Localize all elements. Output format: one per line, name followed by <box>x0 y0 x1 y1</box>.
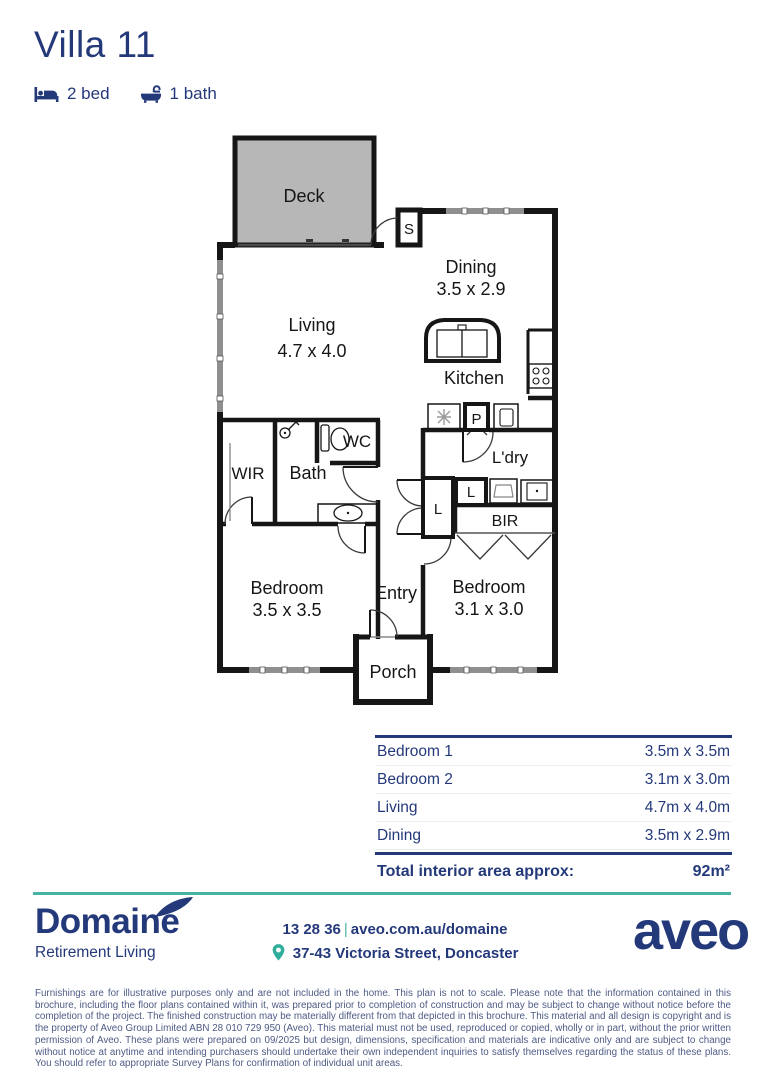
bed-icon <box>34 86 59 103</box>
contact-line-1: 13 28 36|aveo.com.au/domaine <box>250 918 540 942</box>
table-row: Bedroom 1 3.5m x 3.5m <box>375 738 732 766</box>
label-porch: Porch <box>369 662 416 682</box>
aveo-logo: aveo <box>633 900 748 962</box>
row-label: Bedroom 1 <box>377 743 453 761</box>
row-value: 3.5m x 3.5m <box>645 743 730 761</box>
floor-plan: Deck S Dining 3.5 x 2.9 Living 4.7 x 4.0… <box>190 128 570 713</box>
page-title: Villa 11 <box>34 24 156 66</box>
footer-divider <box>33 892 731 895</box>
table-row: Bedroom 2 3.1m x 3.0m <box>375 766 732 794</box>
label-bedroom1-dims: 3.5 x 3.5 <box>252 600 321 620</box>
label-kitchen: Kitchen <box>444 368 504 388</box>
spec-row: 2 bed 1 bath <box>34 84 217 104</box>
label-deck: Deck <box>283 186 325 206</box>
row-label: Dining <box>377 827 421 845</box>
contact-line-2: 37-43 Victoria Street, Doncaster <box>250 942 540 969</box>
label-dining: Dining <box>445 257 496 277</box>
brochure-page: Villa 11 2 bed <box>0 0 764 1080</box>
dimensions-table: Bedroom 1 3.5m x 3.5m Bedroom 2 3.1m x 3… <box>375 735 732 889</box>
row-value: 3.1m x 3.0m <box>645 771 730 789</box>
label-bedroom2-dims: 3.1 x 3.0 <box>454 599 523 619</box>
bed-label: 2 bed <box>67 84 110 104</box>
row-label: Living <box>377 799 418 817</box>
label-bedroom1: Bedroom <box>250 578 323 598</box>
bath-label: 1 bath <box>170 84 217 104</box>
label-laundry: L'dry <box>492 448 529 467</box>
row-value: 3.5m x 2.9m <box>645 827 730 845</box>
separator: | <box>341 921 351 938</box>
label-linen-tall: L <box>434 501 442 518</box>
label-bir: BIR <box>492 513 519 530</box>
label-bedroom2: Bedroom <box>452 577 525 597</box>
row-label: Bedroom 2 <box>377 771 453 789</box>
total-label: Total interior area approx: <box>377 863 574 881</box>
contact-block: 13 28 36|aveo.com.au/domaine 37-43 Victo… <box>250 918 540 969</box>
label-linen-small: L <box>467 484 475 501</box>
label-wc: WC <box>343 432 371 451</box>
brand-tagline: Retirement Living <box>35 944 225 962</box>
bath-icon <box>140 85 162 103</box>
total-value: 92m² <box>693 863 730 881</box>
label-wir: WIR <box>231 464 264 483</box>
table-row: Living 4.7m x 4.0m <box>375 794 732 822</box>
table-row: Dining 3.5m x 2.9m <box>375 822 732 850</box>
website-url: aveo.com.au/domaine <box>351 921 508 938</box>
total-row: Total interior area approx: 92m² <box>375 852 732 889</box>
label-pantry: P <box>471 411 481 428</box>
washing-machine-icon <box>490 479 517 503</box>
location-pin-icon <box>272 948 289 965</box>
phone-number: 13 28 36 <box>282 921 340 938</box>
domaine-logo: Domainé Retirement Living <box>35 901 225 962</box>
address: 37-43 Victoria Street, Doncaster <box>293 945 519 962</box>
label-dining-dims: 3.5 x 2.9 <box>436 279 505 299</box>
label-entry: Entry <box>375 583 417 603</box>
laundry-fixtures <box>423 478 553 537</box>
bed-spec: 2 bed <box>34 84 110 104</box>
disclaimer-text: Furnishings are for illustrative purpose… <box>35 988 731 1070</box>
label-living-dims: 4.7 x 4.0 <box>277 341 346 361</box>
bath-spec: 1 bath <box>140 84 217 104</box>
leaf-icon <box>153 887 195 929</box>
row-value: 4.7m x 4.0m <box>645 799 730 817</box>
label-living: Living <box>288 315 335 335</box>
label-bath: Bath <box>289 463 326 483</box>
label-store: S <box>404 221 414 238</box>
toilet-icon <box>321 425 329 451</box>
